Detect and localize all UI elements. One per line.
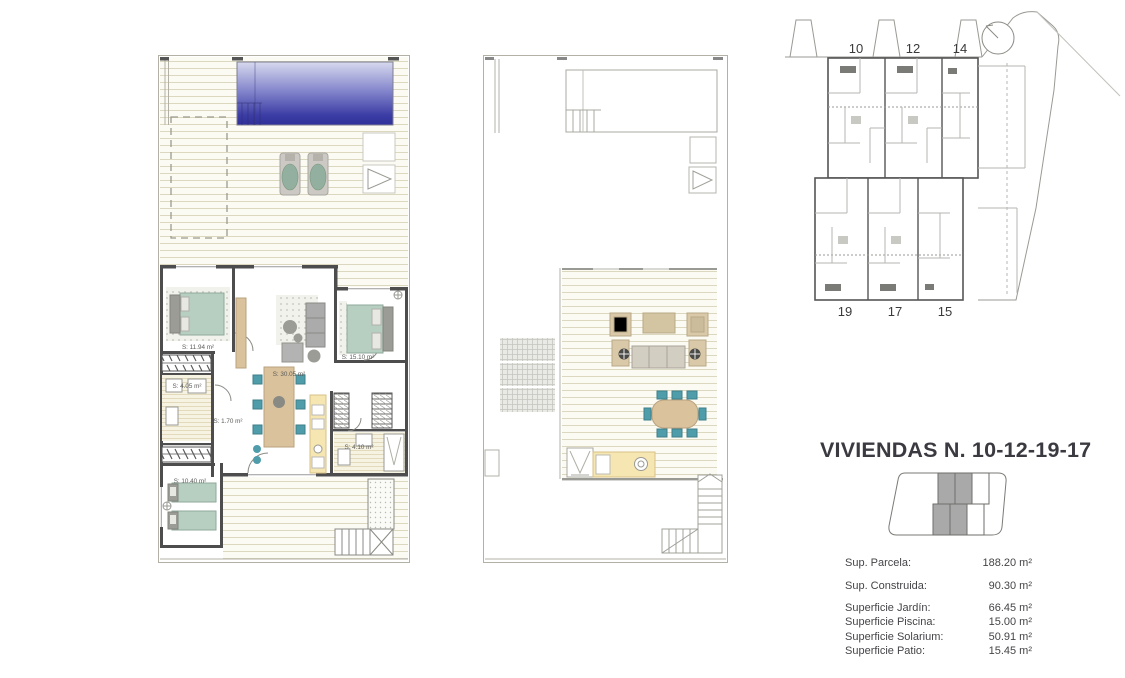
access-arrow — [689, 167, 716, 193]
stat-value: 188.20 m² — [982, 556, 1032, 571]
unit-label: 19 — [838, 304, 852, 319]
stat-label: Sup. Parcela: — [845, 556, 911, 571]
unit-label: 17 — [888, 304, 902, 319]
stat-row: Superficie Solarium: 50.91 m² — [845, 630, 1032, 645]
room-label: S: 10.40 m² — [174, 478, 207, 485]
room-label: S: 4.10 m² — [344, 444, 373, 451]
solarium-drawing — [483, 55, 728, 563]
room-label: S: 11.94 m² — [182, 344, 214, 351]
outdoor-shower — [567, 448, 593, 477]
page-title: VIVIENDAS N. 10-12-19-17 — [820, 438, 1091, 463]
ground-floor-drawing: S: 11.94 m² S: 4.05 m² S: 1.70 m² S: 30.… — [158, 55, 410, 563]
site-plan: 10 12 14 19 17 15 — [785, 8, 1125, 323]
stat-value: 50.91 m² — [989, 630, 1032, 645]
area-stats: Sup. Parcela: 188.20 m² Sup. Construida:… — [845, 556, 1032, 659]
patio-stairs — [335, 529, 393, 555]
solarium-deck — [562, 268, 723, 480]
pool-outline — [566, 70, 717, 132]
sun-lounger — [308, 153, 328, 195]
stat-label: Superficie Jardín: — [845, 601, 931, 616]
wardrobe — [236, 298, 246, 368]
access-arrow — [363, 165, 395, 193]
room-label: S: 15.10 m² — [342, 354, 375, 361]
key-plan — [885, 468, 1015, 540]
solarium-floor-plan — [483, 55, 728, 563]
stat-row: Superficie Patio: 15.45 m² — [845, 644, 1032, 659]
housing-block — [815, 58, 1025, 300]
terrace-pad — [690, 137, 716, 163]
stat-row: Superficie Piscina: 15.00 m² — [845, 615, 1032, 630]
north-compass-icon — [982, 22, 1014, 54]
stat-label: Sup. Construida: — [845, 579, 927, 594]
stat-label: Superficie Patio: — [845, 644, 925, 659]
stat-value: 15.45 m² — [989, 644, 1032, 659]
wardrobe-strip-2 — [162, 447, 211, 462]
garden-terrace — [160, 57, 408, 290]
bbq-counter — [593, 452, 655, 477]
sun-lounger — [280, 153, 300, 195]
room-label: S: 30.05 m² — [273, 371, 306, 378]
unit-label: 10 — [849, 41, 863, 56]
stat-value: 66.45 m² — [989, 601, 1032, 616]
unit-label: 14 — [953, 41, 967, 56]
wardrobe-strip-1 — [162, 355, 211, 371]
key-plan-drawing — [885, 468, 1015, 540]
terrace-pad — [363, 133, 395, 161]
stat-value: 15.00 m² — [989, 615, 1032, 630]
ground-floor-plan: S: 11.94 m² S: 4.05 m² S: 1.70 m² S: 30.… — [158, 55, 410, 563]
room-label: S: 1.70 m² — [213, 418, 242, 425]
stat-label: Superficie Piscina: — [845, 615, 936, 630]
unit-label: 15 — [938, 304, 952, 319]
stat-row: Sup. Construida: 90.30 m² — [845, 579, 1032, 594]
living-room — [276, 295, 325, 363]
key-plan-highlighted-units — [933, 473, 989, 535]
swimming-pool — [237, 62, 393, 125]
stat-row: Sup. Parcela: 188.20 m² — [845, 556, 1032, 571]
site-plan-drawing: 10 12 14 19 17 15 — [785, 8, 1125, 323]
stat-value: 90.30 m² — [989, 579, 1032, 594]
sheet: { "document": { "title": "VIVIENDAS N. 1… — [0, 0, 1125, 678]
stat-row: Superficie Jardín: 66.45 m² — [845, 601, 1032, 616]
unit-label: 12 — [906, 41, 920, 56]
room-label: S: 4.05 m² — [172, 383, 201, 390]
gravel-area — [500, 338, 555, 412]
stat-label: Superficie Solarium: — [845, 630, 943, 645]
